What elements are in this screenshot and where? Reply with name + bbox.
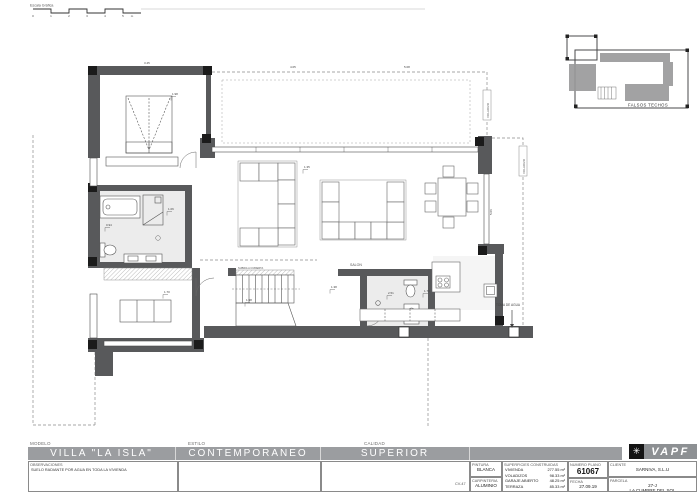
stair-note: SUBIDA A CUBIERTA (238, 266, 264, 270)
parcela-cell: PARCELA 27-J LA CUMBRE DEL SOL (608, 477, 697, 493)
vapf-logo: ✳ VAPF (629, 444, 697, 459)
fecha-cell: FECHA 27.09.19 (568, 478, 608, 492)
sofa-group-center (320, 180, 406, 240)
bed-master (106, 96, 178, 166)
false-ceiling-dashed (222, 80, 470, 143)
titlebar-spacer (470, 447, 622, 460)
style-name: CONTEMPORANEO (176, 447, 321, 460)
ref-code: CV-47 (455, 482, 466, 486)
bed-guest (120, 300, 171, 322)
key-plan: FALSOS TECHOS (566, 35, 690, 109)
key-plan-stairs (598, 87, 616, 99)
svg-text:5: 5 (122, 14, 124, 18)
svg-text:1.38: 1.38 (331, 285, 337, 289)
empty-box-1 (178, 461, 321, 492)
svg-text:TOMA DE AGUA: TOMA DE AGUA (496, 303, 521, 307)
svg-text:2: 2 (68, 14, 70, 18)
observaciones-text: SUELO RADIANTE POR AGUA EN TODA LA VIVIE… (29, 467, 177, 474)
svg-text:1.70: 1.70 (164, 290, 170, 294)
estilo-label: ESTILO (188, 441, 205, 446)
bathtub (100, 196, 140, 218)
kitchen-island-hob (432, 262, 460, 292)
svg-text:1.06: 1.06 (168, 207, 174, 211)
plan-sheet: Escala Gráfica 0 1 2 3 4 5 m (0, 0, 700, 495)
svg-text:0: 0 (32, 14, 34, 18)
vanity-double-sink (124, 254, 162, 263)
svg-text:2.51: 2.51 (388, 291, 394, 295)
superficies-cell: SUPERFICIES CONSTRUIDAS VIVIENDA 277.55 … (502, 461, 568, 492)
svg-text:1.73: 1.73 (424, 289, 430, 293)
svg-text:1.98: 1.98 (172, 92, 178, 96)
svg-text:m: m (131, 14, 134, 18)
plan-number: 61067 (569, 467, 607, 476)
pintura-cell: PINTURA BLANCA (470, 461, 502, 477)
modelo-label: MODELO (30, 441, 51, 446)
svg-text:5.08: 5.08 (404, 65, 410, 69)
key-plan-label: FALSOS TECHOS (628, 103, 668, 108)
empty-box-2 (321, 461, 470, 492)
superficie-row: TERRAZA 85.33 m² (503, 484, 567, 490)
svg-text:0.94: 0.94 (106, 223, 112, 227)
svg-text:1: 1 (50, 14, 52, 18)
cliente-value: SARNIVA, S.L.U (609, 467, 696, 472)
fecha-value: 27.09.19 (569, 484, 607, 489)
overhang-label-a: VOLADIZO (483, 90, 491, 120)
carpinteria-value: ALUMINIO (471, 483, 501, 488)
calidad-label: CALIDAD (364, 441, 385, 446)
svg-text:5.06: 5.06 (489, 209, 493, 215)
parcela-line2: LA CUMBRE DEL SOL (609, 488, 696, 493)
brand-name: VAPF (644, 444, 697, 459)
floorplan-drawing: Escala Gráfica 0 1 2 3 4 5 m (0, 0, 700, 495)
scale-bar-label: Escala Gráfica (30, 4, 53, 8)
pintura-value: BLANCA (471, 467, 501, 472)
observaciones-box: OBSERVACIONES SUELO RADIANTE POR AGUA EN… (28, 461, 178, 492)
cliente-cell: CLIENTE SARNIVA, S.L.U (608, 461, 697, 477)
svg-text:1.98: 1.98 (246, 298, 252, 302)
sun-icon: ✳ (629, 444, 644, 459)
model-name: VILLA "LA ISLA" (28, 447, 176, 460)
scale-bar-ticks: 0 1 2 3 4 5 m (32, 14, 134, 18)
quality-name: SUPERIOR (321, 447, 470, 460)
svg-text:1.35: 1.35 (304, 165, 310, 169)
salon-label: SALON (350, 263, 362, 267)
staircase (232, 275, 300, 326)
svg-text:4.05: 4.05 (290, 65, 296, 69)
svg-text:4: 4 (104, 14, 106, 18)
superficie-name: TERRAZA (505, 484, 523, 490)
dining-table (425, 166, 478, 228)
plan-number-cell: NUMERO PLANO 61067 (568, 461, 608, 478)
carpinteria-label: CARPINTERIA (471, 478, 501, 483)
superficie-value: 85.33 m² (550, 484, 565, 490)
overhang-label-b: VOLADIZO (519, 146, 527, 176)
svg-text:VOLADIZO: VOLADIZO (486, 102, 490, 118)
sofa-group-left (238, 161, 297, 247)
svg-text:VOLADIZO: VOLADIZO (522, 158, 526, 174)
svg-text:3.45: 3.45 (144, 61, 150, 65)
scale-bar (33, 9, 425, 13)
svg-text:3: 3 (86, 14, 88, 18)
carpinteria-cell: CARPINTERIA ALUMINIO (470, 477, 502, 493)
